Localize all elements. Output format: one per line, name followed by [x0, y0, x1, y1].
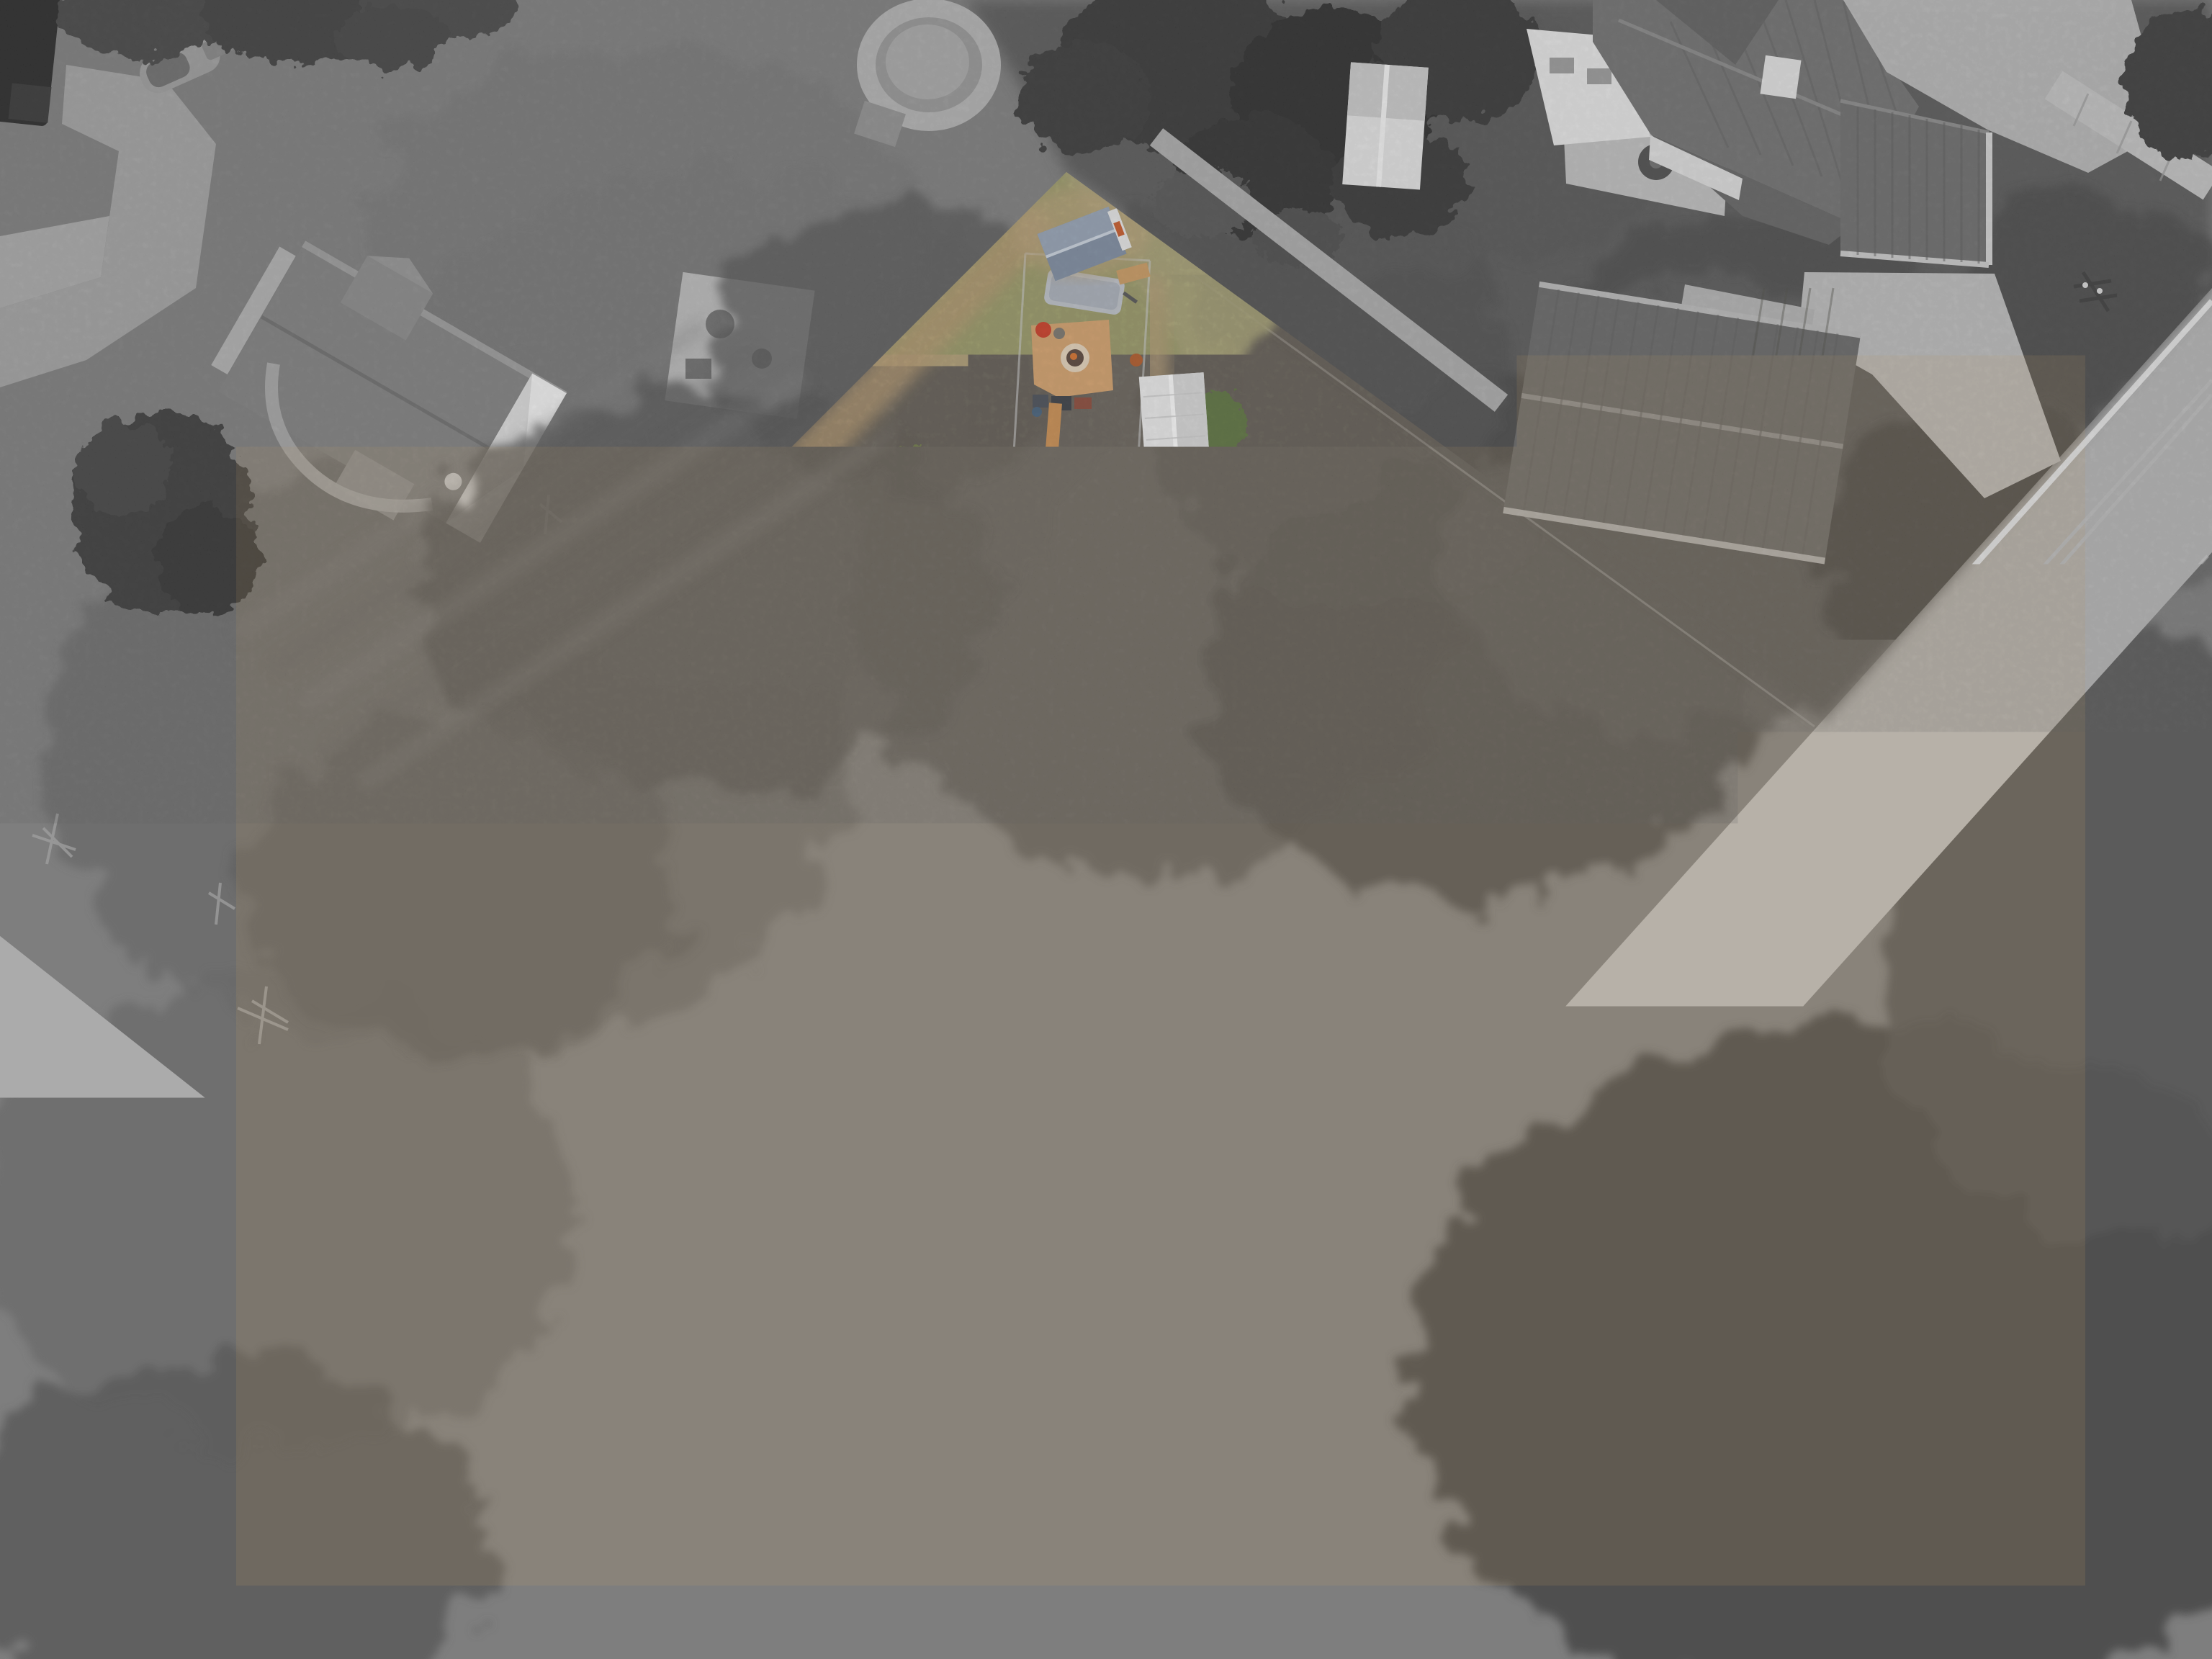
- svg-text:REAL ESTATE SERVICES: REAL ESTATE SERVICES: [36, 1637, 216, 1655]
- svg-text:GEORGIAMLS: GEORGIAMLS: [5, 1585, 244, 1642]
